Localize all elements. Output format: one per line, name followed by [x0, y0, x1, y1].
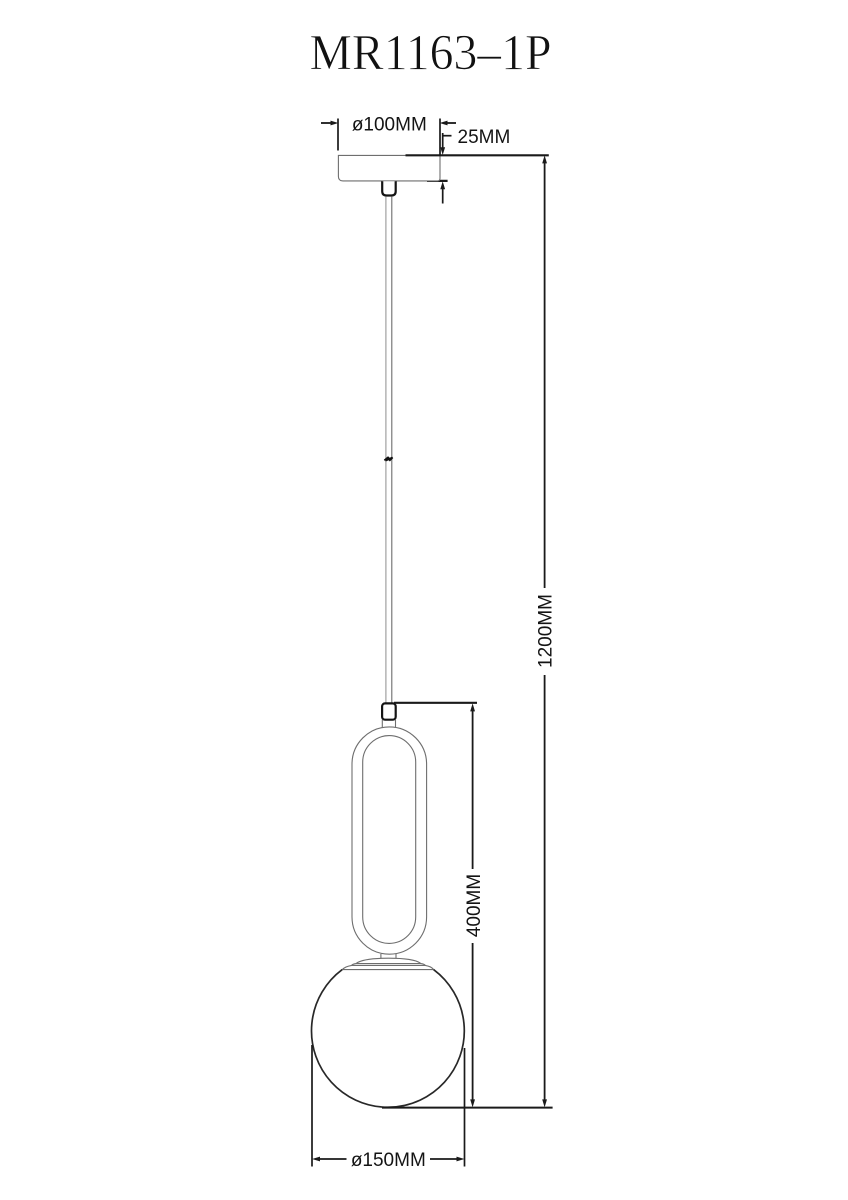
svg-text:25MM: 25MM	[458, 127, 511, 148]
svg-text:400MM: 400MM	[464, 874, 485, 937]
svg-text:ø100MM: ø100MM	[352, 115, 427, 136]
svg-text:1200MM: 1200MM	[536, 594, 557, 668]
svg-text:ø150MM: ø150MM	[351, 1150, 426, 1171]
svg-text:MR1163–1P: MR1163–1P	[310, 26, 552, 82]
